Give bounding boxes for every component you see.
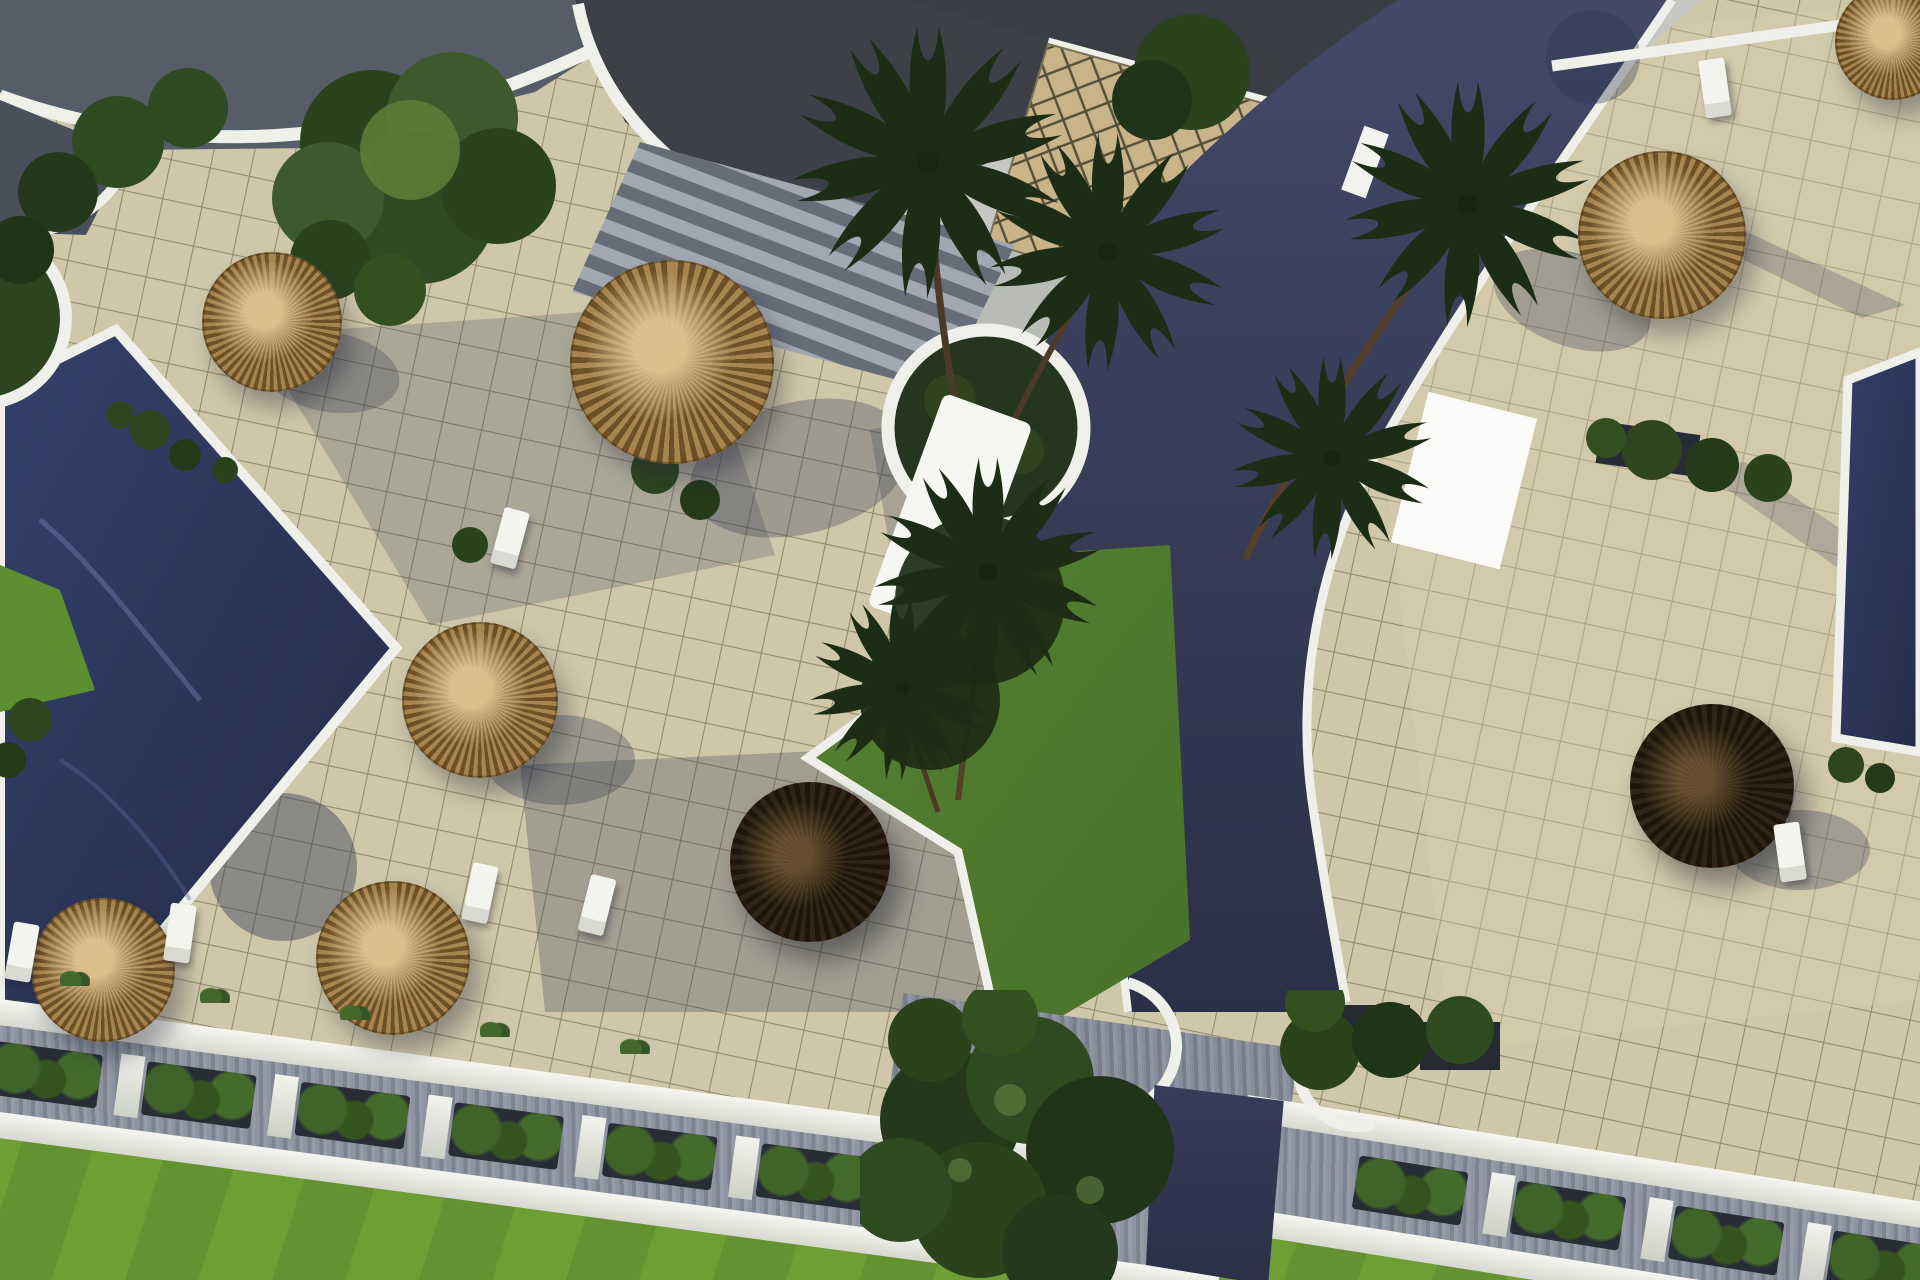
plant-tuft	[620, 1032, 650, 1054]
straw-umbrella	[202, 252, 342, 392]
straw-umbrella	[31, 898, 175, 1042]
sun-lounger	[1698, 57, 1732, 118]
straw-umbrella	[1578, 151, 1746, 319]
plant-tuft	[200, 981, 230, 1003]
plant-tuft	[340, 998, 370, 1020]
dark-umbrella	[1630, 704, 1794, 868]
sun-lounger	[163, 902, 197, 963]
straw-umbrella	[1835, 0, 1920, 100]
plant-tuft	[480, 1015, 510, 1037]
straw-umbrella	[402, 622, 558, 778]
straw-umbrella	[570, 260, 774, 464]
sun-lounger	[490, 507, 530, 570]
sun-lounger	[461, 862, 498, 924]
objects-layer	[0, 0, 1920, 1280]
sun-lounger	[577, 874, 616, 937]
dark-umbrella	[730, 782, 890, 942]
sun-lounger	[1773, 821, 1807, 882]
rendering-canvas	[0, 0, 1920, 1280]
plant-tuft	[60, 964, 90, 986]
